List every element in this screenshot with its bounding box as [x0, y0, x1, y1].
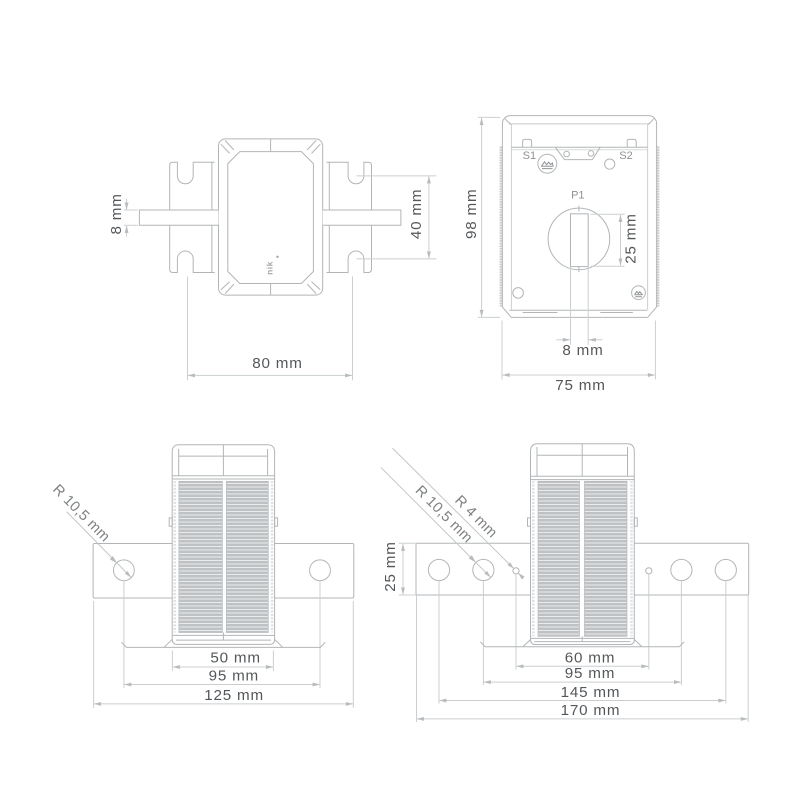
svg-text:95 mm: 95 mm — [565, 665, 615, 682]
svg-text:50 mm: 50 mm — [210, 650, 260, 667]
svg-text:145 mm: 145 mm — [561, 684, 621, 701]
svg-text:125 mm: 125 mm — [204, 687, 264, 704]
svg-text:40 mm: 40 mm — [408, 189, 425, 239]
svg-text:170 mm: 170 mm — [561, 702, 621, 719]
svg-text:8 mm: 8 mm — [562, 342, 603, 359]
svg-text:25 mm: 25 mm — [382, 541, 399, 591]
svg-text:95 mm: 95 mm — [209, 668, 259, 685]
svg-text:R 10,5 mm: R 10,5 mm — [49, 482, 113, 546]
svg-text:S1: S1 — [523, 150, 536, 162]
svg-text:8 mm: 8 mm — [108, 193, 125, 234]
svg-text:25 mm: 25 mm — [622, 213, 639, 263]
svg-text:S2: S2 — [619, 150, 632, 162]
svg-text:80 mm: 80 mm — [252, 355, 302, 372]
svg-text:98 mm: 98 mm — [463, 189, 480, 239]
svg-text:nik: nik — [265, 261, 275, 275]
svg-text:75 mm: 75 mm — [555, 377, 605, 394]
svg-text:P1: P1 — [571, 189, 584, 201]
